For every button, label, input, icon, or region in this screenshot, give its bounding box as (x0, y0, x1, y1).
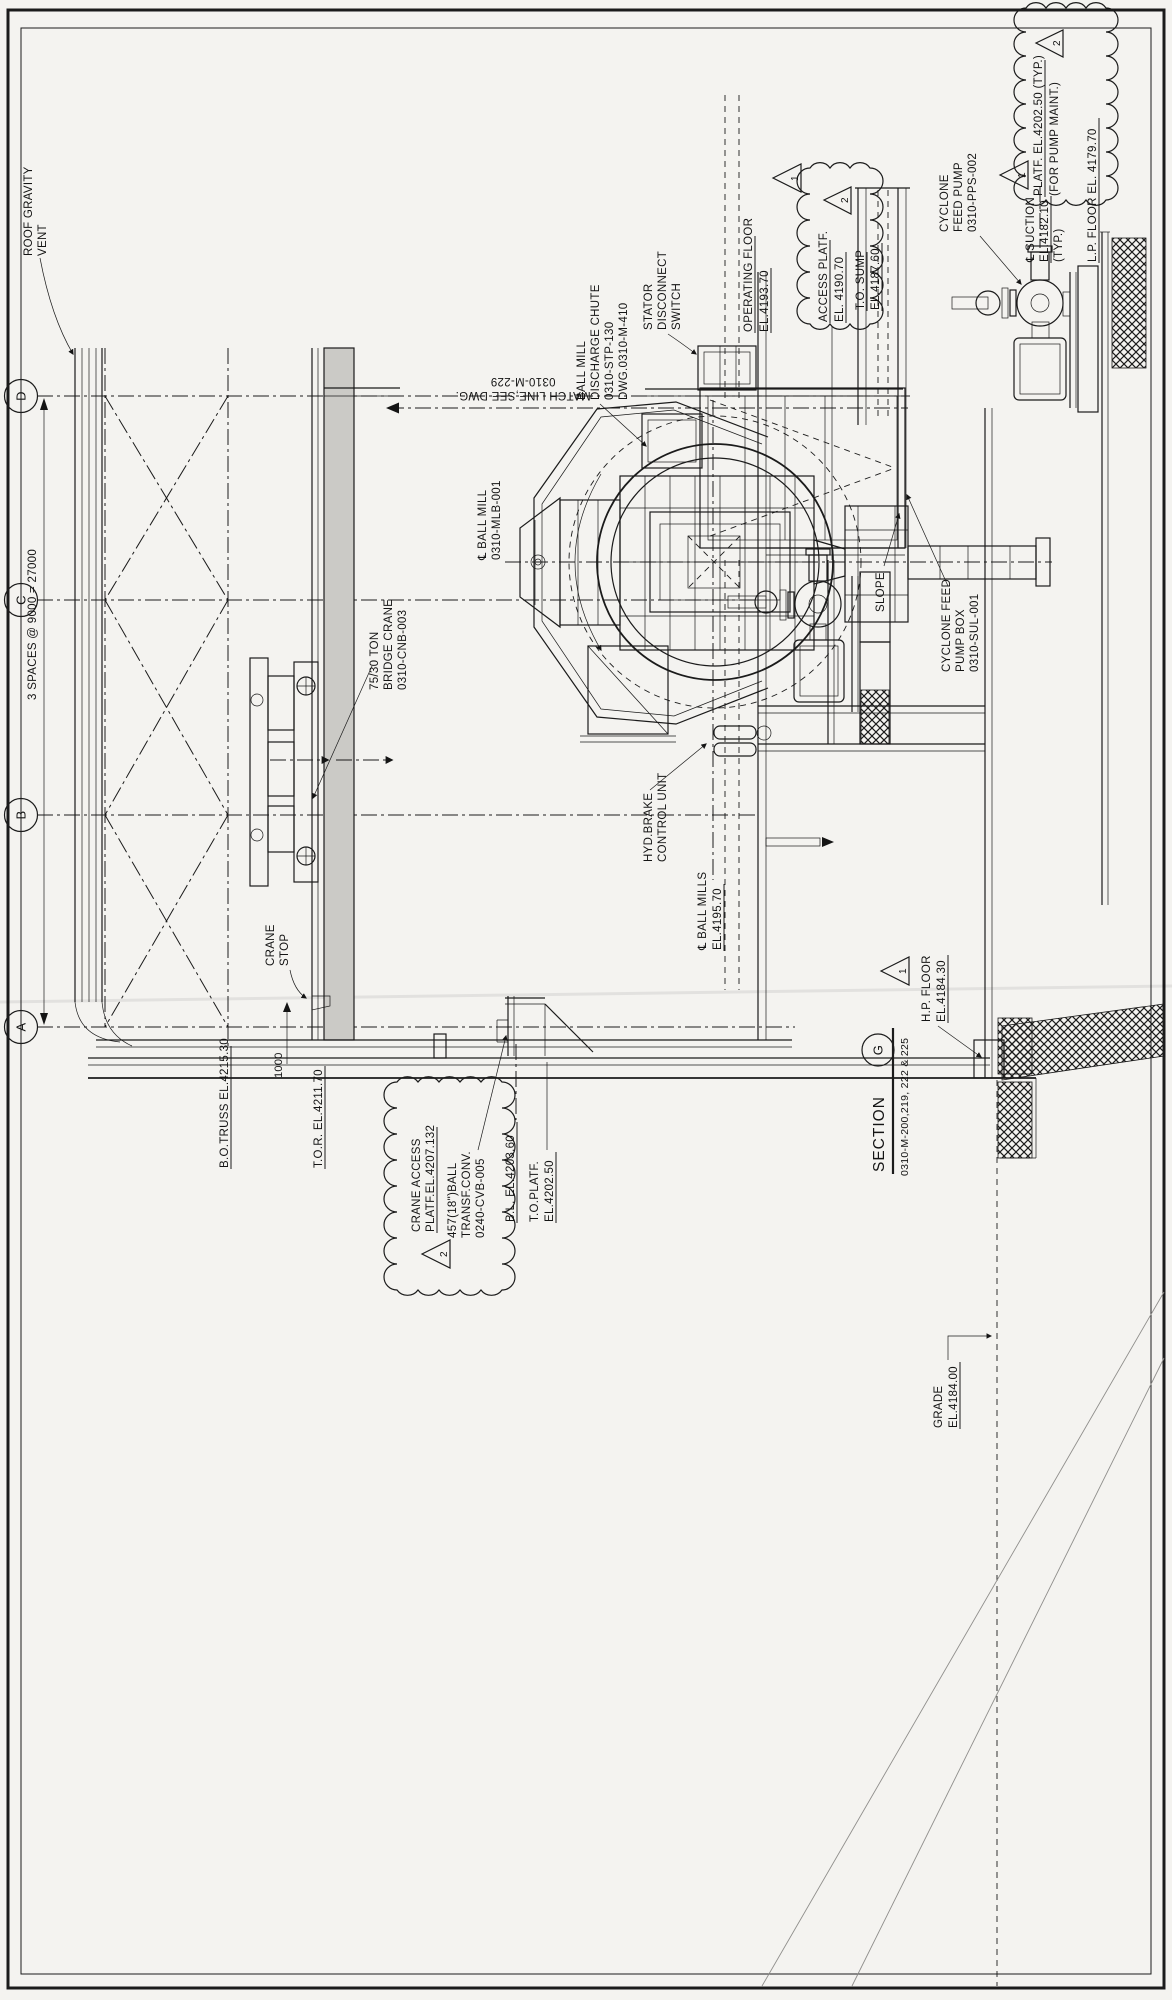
label-roof-gravity-vent: ROOF GRAVITY (23, 166, 35, 256)
label-pump-maint-platf: (FOR PUMP MAINT.) (1049, 82, 1061, 196)
label-bo-truss: B.O.TRUSS EL.4215.30 (219, 1038, 231, 1168)
label-hp-floor: H.P. FLOOR (921, 955, 933, 1022)
section-title: SECTION G 0310-M-200,219, 222 & 225 (862, 1028, 911, 1176)
label-ball-mill: 0310-MLB-001 (491, 480, 503, 560)
roof-truss (105, 348, 228, 1048)
label-to-sump: EL.4187.60 (870, 248, 882, 310)
rev-triangle-1: 1 (898, 968, 909, 974)
label-lp-floor: L.P. FLOOR EL. 4179.70 (1087, 128, 1099, 262)
label-discharge-chute: BALL MILL (576, 341, 588, 400)
label-stator-switch: STATOR (643, 283, 655, 330)
cyclone-feed-pump-lower (728, 549, 890, 744)
label-bl: B.L. EL.4203.60 (505, 1135, 517, 1222)
label-ball-mill: ℄ BALL MILL (477, 489, 489, 561)
label-cyclone-feed-pump: FEED PUMP (953, 162, 965, 232)
label-crane-access-platf: CRANE ACCESS (411, 1138, 423, 1232)
label-operating-floor: EL.4193.70 (759, 270, 771, 332)
label-hp-floor: EL.4184.30 (936, 960, 948, 1022)
label-tor: T.O.R. EL.4211.70 (313, 1069, 325, 1168)
label-pump-box: 0310-SUL-001 (969, 594, 981, 672)
grid-bubble-a: A (14, 1022, 29, 1031)
rev-triangle-1: 1 (1017, 172, 1028, 178)
label-roof-gravity-vent: VENT (37, 224, 49, 256)
grid-system: D C B A 3 SPACES @ 9000 = 27000 (5, 380, 911, 1044)
sheet-border (0, 10, 1172, 1988)
label-suction: (TYP.) (1053, 228, 1065, 262)
section-title-text: SECTION (871, 1096, 888, 1172)
section-drawing-svg: D C B A 3 SPACES @ 9000 = 27000 (0, 0, 1172, 2000)
label-pump-maint-platf: PLATF. EL.4202.50 (TYP.) (1033, 55, 1045, 196)
label-ball-mills-cl: EL.4195.70 (712, 888, 724, 950)
label-ball-transf-conv: 457(18")BALL (447, 1162, 459, 1238)
label-access-platf: ACCESS PLATF. (818, 231, 830, 322)
label-ball-mills-cl: ℄ BALL MILLS (697, 872, 709, 951)
labels: ROOF GRAVITY VENT MATCH LINE,SEE DWG. 03… (23, 55, 1099, 1429)
label-grade: EL.4184.00 (948, 1366, 960, 1428)
cloud-pump-maint (1014, 3, 1118, 206)
label-bridge-crane: 0310-CNB-003 (397, 610, 409, 690)
label-slope: SLOPE (875, 572, 887, 612)
label-hyd-brake: HYD.BRAKE (643, 793, 655, 862)
rev-triangle-2: 2 (439, 1251, 450, 1257)
label-bridge-crane: BRIDGE CRANE (383, 599, 395, 690)
section-letter: G (871, 1045, 886, 1055)
label-crane-stop: STOP (279, 934, 291, 966)
label-to-platf: EL.4202.50 (544, 1160, 556, 1222)
label-pump-box: CYCLONE FEED (941, 579, 953, 672)
rev-triangle-2: 2 (1052, 40, 1063, 46)
label-discharge-chute: 0310-STP-130 (604, 322, 616, 400)
label-bridge-crane: 75/30 TON (369, 631, 381, 690)
label-stator-switch: SWITCH (671, 283, 683, 330)
label-discharge-chute: DISCHARGE CHUTE (590, 284, 602, 400)
crane-runway (312, 348, 400, 1040)
pump-box-sump (700, 188, 910, 548)
label-suction: EL.4182.10 (1039, 200, 1051, 262)
grid-spacing-note: 3 SPACES @ 9000 = 27000 (27, 549, 39, 700)
label-dim-1000: 1000 (273, 1052, 285, 1078)
label-match-line: MATCH LINE,SEE DWG. (455, 389, 590, 401)
label-to-sump: T.O. SUMP (855, 250, 867, 310)
floors-and-grade (762, 232, 1164, 1986)
label-stator-switch: DISCONNECT (657, 251, 669, 330)
label-cyclone-feed-pump: CYCLONE (939, 174, 951, 232)
label-discharge-chute: DWG.0310-M-410 (618, 302, 630, 400)
label-cyclone-feed-pump: 0310-PPS-002 (967, 153, 979, 232)
grid-bubble-d: D (14, 391, 29, 401)
operating-floor-structure (645, 95, 985, 1040)
grid-bubble-b: B (14, 811, 29, 820)
label-suction: ℄ SUCTION (1025, 197, 1037, 263)
drawing-sheet: D C B A 3 SPACES @ 9000 = 27000 (0, 0, 1172, 2000)
label-crane-access-platf: PLATF.EL.4207.132 (425, 1125, 437, 1232)
label-hyd-brake: CONTROL UNIT (657, 773, 669, 862)
label-match-line: 0310-M-229 (490, 375, 555, 387)
label-to-platf: T.O.PLATF. (529, 1161, 541, 1222)
label-ball-transf-conv: TRANSF.CONV. (461, 1151, 473, 1238)
roof (75, 348, 132, 1046)
label-pump-box: PUMP BOX (955, 609, 967, 672)
label-operating-floor: OPERATING FLOOR (743, 218, 755, 332)
section-dwg-refs: 0310-M-200,219, 222 & 225 (899, 1038, 911, 1176)
rev-triangle-1: 1 (790, 175, 801, 181)
label-grade: GRADE (933, 1386, 945, 1428)
label-access-platf: EL. 4190.70 (834, 257, 846, 322)
rev-triangle-2: 2 (840, 197, 851, 203)
label-ball-transf-conv: 0240-CVB-005 (475, 1158, 487, 1238)
label-crane-stop: CRANE (265, 924, 277, 966)
